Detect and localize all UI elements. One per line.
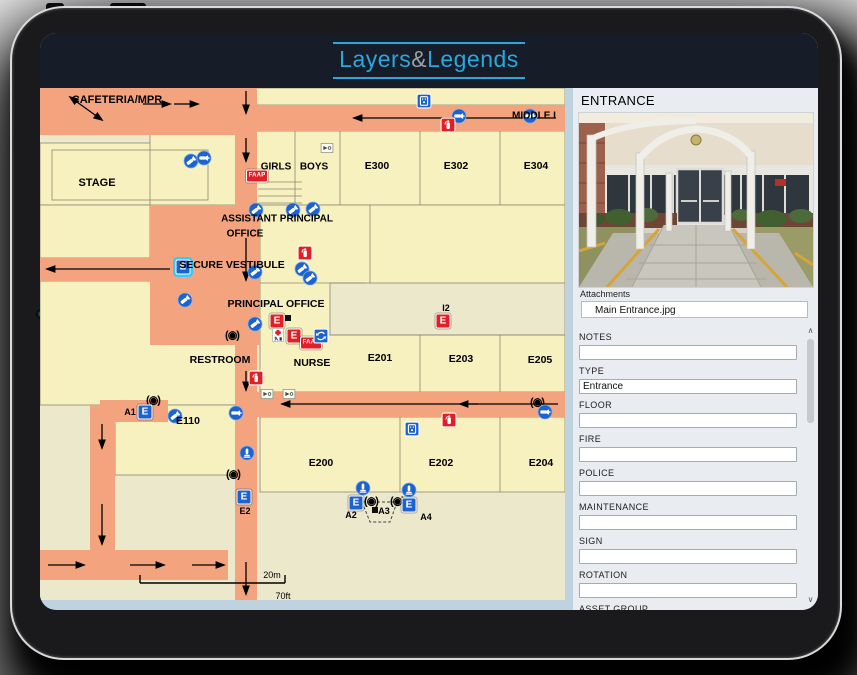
map-icon-exit-blue[interactable]: E bbox=[237, 490, 252, 505]
field-input-type[interactable] bbox=[579, 379, 797, 394]
map-icons-layer: FAAPE(◉)EEFAAPE(◉)E(◉)(◉)EE(◉)(◉)E bbox=[40, 88, 565, 600]
map-icon-dome[interactable]: (◉) bbox=[226, 468, 240, 481]
map-icon-blacksq[interactable] bbox=[285, 315, 291, 321]
map-icon-exit-blue[interactable]: E bbox=[402, 498, 417, 513]
map-icon-cam[interactable] bbox=[303, 271, 318, 286]
field-label: FIRE bbox=[579, 434, 797, 444]
map-icon-ext[interactable] bbox=[442, 413, 457, 428]
map-icon-ext[interactable] bbox=[441, 118, 456, 133]
scroll-up-icon[interactable]: ∧ bbox=[804, 326, 817, 335]
entrance-photo-art bbox=[579, 113, 813, 287]
map-icon-cam[interactable] bbox=[249, 203, 264, 218]
field-type: TYPE bbox=[579, 366, 797, 394]
field-input-floor[interactable] bbox=[579, 413, 797, 428]
field-label: TYPE bbox=[579, 366, 797, 376]
field-label: ASSET GROUP bbox=[579, 604, 797, 610]
app-logo: Layers&Legends bbox=[333, 42, 525, 79]
scrollbar-thumb[interactable] bbox=[807, 339, 814, 423]
main-content: FAAPE(◉)EEFAAPE(◉)E(◉)(◉)EE(◉)(◉)E CAFET… bbox=[40, 88, 818, 610]
map-icon-faap[interactable]: FAAP bbox=[246, 170, 268, 183]
map-icon-dome[interactable]: (◉) bbox=[225, 329, 239, 342]
field-label: SIGN bbox=[579, 536, 797, 546]
logo-part-1: Layers bbox=[339, 46, 411, 72]
logo-ampersand: & bbox=[411, 46, 427, 72]
map-icon-exit-red[interactable]: E bbox=[436, 314, 451, 329]
field-input-rotation[interactable] bbox=[579, 583, 797, 598]
entrance-photo[interactable] bbox=[578, 112, 814, 288]
map-icon-dome[interactable]: (◉) bbox=[364, 495, 378, 508]
map-icon-aed[interactable] bbox=[405, 422, 420, 437]
map-icon-exit-blue[interactable]: E bbox=[176, 260, 191, 275]
map-icon-cam[interactable] bbox=[168, 409, 183, 424]
map-icon-blacksq[interactable] bbox=[372, 507, 378, 513]
map-icon-ext[interactable] bbox=[298, 246, 313, 261]
field-label: NOTES bbox=[579, 332, 797, 342]
field-rotation: ROTATION bbox=[579, 570, 797, 598]
map-icon-whitebox[interactable] bbox=[261, 389, 274, 399]
field-input-police[interactable] bbox=[579, 481, 797, 496]
floorplan-map[interactable]: FAAPE(◉)EEFAAPE(◉)E(◉)(◉)EE(◉)(◉)E CAFET… bbox=[40, 88, 565, 600]
details-panel: ENTRANCE bbox=[573, 88, 818, 610]
map-icon-ext[interactable] bbox=[249, 371, 264, 386]
map-icon-alarm[interactable] bbox=[402, 483, 417, 498]
tablet-device-frame: Layers&Legends bbox=[10, 6, 842, 660]
map-icon-horn[interactable] bbox=[229, 406, 244, 421]
map-icon-cam[interactable] bbox=[178, 293, 193, 308]
field-label: ROTATION bbox=[579, 570, 797, 580]
field-maintenance: MAINTENANCE bbox=[579, 502, 797, 530]
field-input-maintenance[interactable] bbox=[579, 515, 797, 530]
scroll-down-icon[interactable]: ∨ bbox=[804, 595, 817, 604]
logo-part-2: Legends bbox=[427, 46, 519, 72]
map-icon-rotate[interactable] bbox=[314, 329, 329, 344]
map-icon-horn[interactable] bbox=[538, 405, 553, 420]
field-fire: FIRE bbox=[579, 434, 797, 462]
map-icon-exit-red[interactable]: E bbox=[270, 314, 285, 329]
field-input-sign[interactable] bbox=[579, 549, 797, 564]
field-police: POLICE bbox=[579, 468, 797, 496]
attachment-item[interactable]: Main Entrance.jpg bbox=[581, 301, 808, 318]
map-icon-cam[interactable] bbox=[248, 265, 263, 280]
field-label: FLOOR bbox=[579, 400, 797, 410]
panel-title: ENTRANCE bbox=[573, 88, 818, 111]
map-icon-aed[interactable] bbox=[417, 94, 432, 109]
map-icon-horn[interactable] bbox=[197, 151, 212, 166]
map-icon-cam[interactable] bbox=[248, 317, 263, 332]
map-icon-alarm[interactable] bbox=[356, 481, 371, 496]
field-notes: NOTES bbox=[579, 332, 797, 360]
map-icon-alarm[interactable] bbox=[240, 446, 255, 461]
map-icon-exit-blue[interactable]: E bbox=[349, 496, 364, 511]
map-icon-whitebox[interactable] bbox=[283, 389, 296, 399]
field-asset-group: ASSET GROUP bbox=[579, 604, 797, 610]
map-icon-cam[interactable] bbox=[306, 202, 321, 217]
app-screen: Layers&Legends bbox=[40, 33, 818, 610]
map-icon-cam[interactable] bbox=[286, 203, 301, 218]
field-input-fire[interactable] bbox=[579, 447, 797, 462]
panel-scrollbar[interactable]: ∧ ∨ bbox=[804, 326, 817, 604]
attachments-label: Attachments bbox=[580, 289, 630, 299]
map-icon-whitebox[interactable] bbox=[321, 143, 334, 153]
field-input-notes[interactable] bbox=[579, 345, 797, 360]
field-sign: SIGN bbox=[579, 536, 797, 564]
app-top-bar: Layers&Legends bbox=[40, 33, 818, 88]
field-label: MAINTENANCE bbox=[579, 502, 797, 512]
map-icon-exit-blue[interactable]: E bbox=[138, 405, 153, 420]
map-icon-firstaid[interactable] bbox=[272, 328, 284, 342]
fields-form: NOTESTYPEFLOORFIREPOLICEMAINTENANCESIGNR… bbox=[579, 326, 797, 610]
field-floor: FLOOR bbox=[579, 400, 797, 428]
field-label: POLICE bbox=[579, 468, 797, 478]
map-icon-horn[interactable] bbox=[523, 109, 538, 124]
